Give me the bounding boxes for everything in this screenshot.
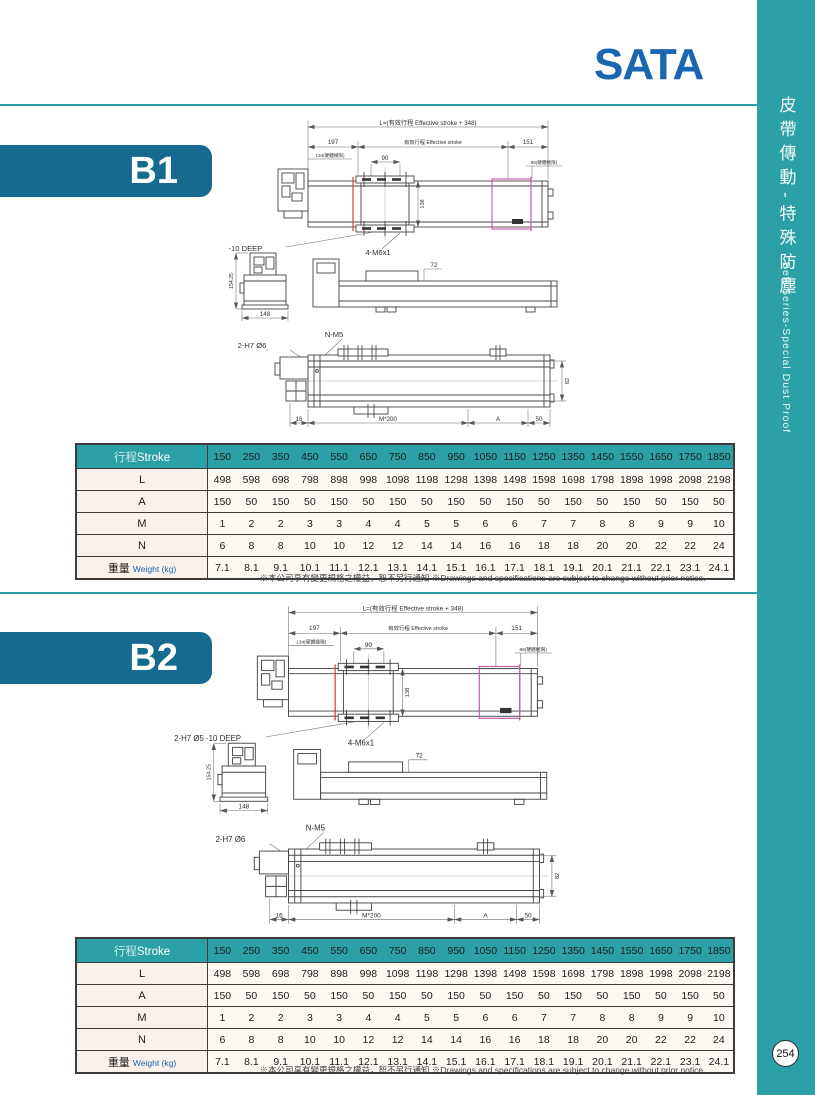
table-cell: 1150 — [500, 938, 529, 963]
table-cell: 1098 — [383, 963, 412, 985]
table-cell: 150 — [559, 985, 588, 1007]
table-cell: 8 — [237, 535, 266, 557]
table-cell: 1898 — [617, 963, 646, 985]
table-cell: 5 — [442, 1007, 471, 1029]
dim-151: 151 — [511, 625, 522, 632]
table-cell: 16 — [471, 1029, 500, 1051]
page-number: 254 — [776, 1048, 794, 1060]
table-cell: 9 — [646, 1007, 675, 1029]
table-cell: 50 — [354, 491, 383, 513]
table-cell: 50 — [295, 985, 324, 1007]
disclaimer-note: ※本公司享有變更規格之權益，恕不另行通知 ※Drawings and speci… — [230, 572, 735, 584]
table-cell: 798 — [295, 469, 324, 491]
table-cell: 1250 — [529, 938, 558, 963]
top-divider — [0, 104, 757, 106]
table-cell: 10 — [705, 1007, 734, 1029]
table-cell: 24 — [705, 1029, 734, 1051]
row-label: N — [76, 535, 208, 557]
table-cell: 2 — [266, 1007, 295, 1029]
table-cell: 898 — [325, 963, 354, 985]
row-label-weight: 重量 Weight (kg) — [76, 557, 208, 580]
table-cell: 4 — [354, 513, 383, 535]
table-cell: 20 — [617, 1029, 646, 1051]
table-cell: 1398 — [471, 469, 500, 491]
label-m6: 4-M6x1 — [348, 738, 374, 747]
table-cell: 1050 — [471, 938, 500, 963]
table-cell: 4 — [383, 1007, 412, 1029]
section-label-b1: B1 — [0, 145, 212, 197]
table-cell: 6 — [500, 1007, 529, 1029]
dim-A: A — [496, 416, 501, 423]
table-cell: 1550 — [617, 444, 646, 469]
table-cell: 598 — [237, 469, 266, 491]
dim-effective-stroke: 有效行程 Effective stroke — [404, 138, 462, 146]
table-cell: 18 — [529, 535, 558, 557]
dim-197: 197 — [328, 139, 339, 146]
table-row: L 49859869879889899810981198129813981498… — [76, 963, 734, 985]
table-cell: 3 — [295, 1007, 324, 1029]
sidebar: 皮帶傳動-特殊防塵 Belt Series-Special Dust Proof… — [757, 0, 815, 1095]
dim-154: 154.25 — [229, 273, 235, 289]
catalog-page: SATA 皮帶傳動-特殊防塵 Belt Series-Special Dust … — [0, 0, 815, 1095]
table-cell: 950 — [442, 938, 471, 963]
label-bottom-holes: 2-H7 Ø6 — [215, 835, 245, 844]
table-row: A 15050150501505015050150501505015050150… — [76, 985, 734, 1007]
table-cell: 22 — [676, 1029, 705, 1051]
table-cell: 22 — [676, 535, 705, 557]
side-view: 72 — [313, 259, 557, 312]
dim-88-limit: 88(硬體極限) — [519, 646, 547, 653]
row-label-weight: 重量 Weight (kg) — [76, 1051, 208, 1074]
table-cell: 150 — [325, 985, 354, 1007]
table-cell: 24 — [705, 535, 734, 557]
dim-effective-stroke: 有效行程 Effective stroke — [388, 624, 448, 632]
table-cell: 10 — [295, 1029, 324, 1051]
table-cell: 150 — [617, 985, 646, 1007]
table-cell: 14 — [442, 535, 471, 557]
dim-50: 50 — [524, 912, 532, 919]
table-cell: 50 — [412, 491, 441, 513]
table-cell: 1998 — [646, 469, 675, 491]
table-cell: 150 — [676, 491, 705, 513]
table-cell: 14 — [412, 1029, 441, 1051]
table-cell: 150 — [500, 491, 529, 513]
dim-82: 82 — [555, 873, 561, 879]
table-cell: 8 — [266, 1029, 295, 1051]
table-cell: 550 — [325, 444, 354, 469]
table-cell: 12 — [354, 1029, 383, 1051]
table-cell: 8 — [588, 1007, 617, 1029]
table-cell: 1198 — [412, 469, 441, 491]
table-cell: 6 — [471, 513, 500, 535]
table-cell: 950 — [442, 444, 471, 469]
table-cell: 1350 — [559, 938, 588, 963]
table-cell: 50 — [529, 985, 558, 1007]
row-label: L — [76, 469, 208, 491]
table-cell: 150 — [442, 491, 471, 513]
disclaimer-en: ※Drawings and specifications are subject… — [432, 573, 706, 583]
table-cell: 1350 — [559, 444, 588, 469]
label-m6: 4-M6x1 — [365, 248, 390, 257]
table-cell: 1498 — [500, 963, 529, 985]
table-cell: 8 — [617, 513, 646, 535]
technical-drawing-b1: L=(有效行程 Effective stroke + 348) 197 有效行程… — [228, 112, 578, 436]
dim-151: 151 — [523, 139, 534, 146]
table-cell: 2 — [237, 513, 266, 535]
sidebar-title-en: Belt Series-Special Dust Proof — [780, 262, 792, 433]
dim-134-limit: 134(硬體極限) — [315, 152, 345, 159]
table-cell: 16 — [471, 535, 500, 557]
table-cell: 50 — [646, 491, 675, 513]
table-header-row: 行程Stroke 1502503504505506507508509501050… — [76, 938, 734, 963]
table-cell: 1650 — [646, 444, 675, 469]
dim-148: 148 — [260, 311, 271, 318]
row-label: M — [76, 513, 208, 535]
dim-138: 138 — [405, 688, 411, 698]
table-cell: 9 — [646, 513, 675, 535]
page-number-badge: 254 — [772, 1040, 799, 1067]
table-cell: 250 — [237, 444, 266, 469]
table-cell: 6 — [208, 1029, 237, 1051]
table-cell: 1498 — [500, 469, 529, 491]
table-cell: 150 — [500, 985, 529, 1007]
table-cell: 4 — [354, 1007, 383, 1029]
table-cell: 50 — [588, 985, 617, 1007]
table-cell: 1750 — [676, 938, 705, 963]
table-cell: 998 — [354, 469, 383, 491]
table-cell: 998 — [354, 963, 383, 985]
table-cell: 498 — [208, 963, 237, 985]
table-row: M 1223344556677889910 — [76, 1007, 734, 1029]
table-header-row: 行程Stroke 1502503504505506507508509501050… — [76, 444, 734, 469]
table-cell: 750 — [383, 444, 412, 469]
dim-82: 82 — [565, 378, 571, 384]
table-cell: 22 — [646, 1029, 675, 1051]
table-cell: 12 — [354, 535, 383, 557]
table-cell: 50 — [237, 491, 266, 513]
top-view: L=(有效行程 Effective stroke + 348) 197 有效行程… — [228, 119, 562, 257]
table-cell: 20 — [588, 1029, 617, 1051]
table-cell: 1198 — [412, 963, 441, 985]
table-cell: 8 — [266, 535, 295, 557]
dim-138: 138 — [420, 199, 426, 208]
table-cell: 10 — [325, 1029, 354, 1051]
table-cell: 1798 — [588, 963, 617, 985]
table-cell: 1398 — [471, 963, 500, 985]
label-top-holes: 2-H7 Ø5 -10 DEEP — [228, 244, 262, 253]
table-cell: 12 — [383, 535, 412, 557]
table-cell: 150 — [208, 491, 237, 513]
dim-148: 148 — [238, 804, 249, 811]
table-cell: 6 — [500, 513, 529, 535]
table-cell: 4 — [383, 513, 412, 535]
table-cell: 7 — [529, 513, 558, 535]
table-cell: 2198 — [705, 963, 734, 985]
table-cell: 50 — [237, 985, 266, 1007]
table-cell: 6 — [208, 535, 237, 557]
disclaimer-en: ※Drawings and specifications are subject… — [432, 1065, 706, 1075]
dim-72: 72 — [431, 262, 438, 269]
table-cell: 16 — [500, 1029, 529, 1051]
table-cell: 10 — [705, 513, 734, 535]
table-cell: 7 — [559, 1007, 588, 1029]
table-cell: 50 — [471, 491, 500, 513]
dim-88-limit: 88(硬體極限) — [531, 159, 558, 166]
disclaimer-zh: ※本公司享有變更規格之權益，恕不另行通知 — [260, 1065, 430, 1075]
table-cell: 1998 — [646, 963, 675, 985]
table-cell: 150 — [559, 491, 588, 513]
table-cell: 9 — [676, 1007, 705, 1029]
table-cell: 7 — [529, 1007, 558, 1029]
table-cell: 16 — [500, 535, 529, 557]
table-cell: 5 — [412, 1007, 441, 1029]
dim-A: A — [483, 912, 488, 919]
stroke-table-b2: 行程Stroke 1502503504505506507508509501050… — [75, 937, 735, 1074]
end-view: 154.25 148 — [229, 253, 288, 321]
section-divider — [0, 592, 757, 594]
table-cell: 1298 — [442, 963, 471, 985]
dim-90: 90 — [382, 155, 389, 162]
top-view: L=(有效行程 Effective stroke + 348) 197 有效行程… — [174, 603, 552, 747]
dim-154: 154.25 — [207, 764, 213, 780]
table-cell: 1898 — [617, 469, 646, 491]
table-cell: 1150 — [500, 444, 529, 469]
table-cell: 150 — [208, 444, 237, 469]
table-cell: 5 — [442, 513, 471, 535]
table-cell: 50 — [295, 491, 324, 513]
table-cell: 1250 — [529, 444, 558, 469]
table-cell: 150 — [208, 985, 237, 1007]
stroke-header-cell: 行程Stroke — [76, 444, 208, 469]
table-cell: 798 — [295, 963, 324, 985]
table-cell: 150 — [617, 491, 646, 513]
table-cell: 1598 — [529, 963, 558, 985]
table-cell: 1450 — [588, 444, 617, 469]
table-cell: 498 — [208, 469, 237, 491]
table-cell: 50 — [588, 491, 617, 513]
end-view: 154.25 148 — [207, 743, 268, 814]
dim-197: 197 — [309, 625, 320, 632]
table-cell: 7 — [559, 513, 588, 535]
table-cell: 20 — [588, 535, 617, 557]
table-cell: 3 — [295, 513, 324, 535]
dim-72: 72 — [416, 753, 424, 760]
table-cell: 2098 — [676, 469, 705, 491]
sata-logo: SATA — [594, 40, 703, 90]
table-cell: 9 — [676, 513, 705, 535]
table-cell: 18 — [559, 535, 588, 557]
table-cell: 650 — [354, 938, 383, 963]
table-cell: 50 — [529, 491, 558, 513]
table-cell: 50 — [646, 985, 675, 1007]
table-cell: 8 — [588, 513, 617, 535]
table-cell: 150 — [266, 985, 295, 1007]
table-cell: 50 — [412, 985, 441, 1007]
table-cell: 150 — [266, 491, 295, 513]
dim-m200: M*200 — [362, 912, 381, 919]
table-cell: 1750 — [676, 444, 705, 469]
row-label: A — [76, 491, 208, 513]
label-top-holes: 2-H7 Ø5 -10 DEEP — [174, 734, 241, 743]
table-cell: 10 — [325, 535, 354, 557]
table-cell: 698 — [266, 469, 295, 491]
table-cell: 18 — [559, 1029, 588, 1051]
stroke-table-b1: 行程Stroke 1502503504505506507508509501050… — [75, 443, 735, 580]
dim-134-limit: 134(硬體極限) — [296, 639, 327, 646]
table-cell: 2 — [266, 513, 295, 535]
table-cell: 450 — [295, 938, 324, 963]
table-cell: 250 — [237, 938, 266, 963]
dim-50: 50 — [536, 416, 543, 423]
table-cell: 150 — [325, 491, 354, 513]
table-cell: 12 — [383, 1029, 412, 1051]
table-cell: 50 — [471, 985, 500, 1007]
dim-m200: M*200 — [379, 416, 397, 423]
table-cell: 1550 — [617, 938, 646, 963]
table-cell: 650 — [354, 444, 383, 469]
row-label: A — [76, 985, 208, 1007]
table-cell: 150 — [208, 938, 237, 963]
table-cell: 1850 — [705, 938, 734, 963]
table-cell: 8 — [617, 1007, 646, 1029]
table-cell: 450 — [295, 444, 324, 469]
table-cell: 20 — [617, 535, 646, 557]
table-cell: 14 — [412, 535, 441, 557]
table-cell: 1650 — [646, 938, 675, 963]
table-cell: 22 — [646, 535, 675, 557]
table-cell: 698 — [266, 963, 295, 985]
table-cell: 1098 — [383, 469, 412, 491]
stroke-header-cell: 行程Stroke — [76, 938, 208, 963]
dim-16: 16 — [276, 912, 284, 919]
table-cell: 18 — [529, 1029, 558, 1051]
table-cell: 898 — [325, 469, 354, 491]
dim-90: 90 — [365, 642, 373, 649]
table-cell: 50 — [354, 985, 383, 1007]
table-cell: 14 — [442, 1029, 471, 1051]
side-view: 72 — [294, 749, 547, 804]
bottom-view: N-M5 2-H7 Ø6 82 16 M*200 A 50 — [215, 823, 561, 923]
table-row: N 688101012121414161618182020222224 — [76, 1029, 734, 1051]
table-cell: 50 — [705, 491, 734, 513]
table-cell: 150 — [383, 491, 412, 513]
table-cell: 5 — [412, 513, 441, 535]
bottom-view: N-M5 2-H7 Ø6 82 16 M*200 A 50 — [238, 330, 571, 427]
table-cell: 50 — [705, 985, 734, 1007]
table-cell: 1 — [208, 513, 237, 535]
row-label: N — [76, 1029, 208, 1051]
table-cell: 850 — [412, 444, 441, 469]
table-cell: 598 — [237, 963, 266, 985]
table-cell: 550 — [325, 938, 354, 963]
table-cell: 1598 — [529, 469, 558, 491]
table-cell: 1850 — [705, 444, 734, 469]
dim-overall-length: L=(有效行程 Effective stroke + 348) — [362, 603, 463, 612]
table-cell: 150 — [676, 985, 705, 1007]
label-bottom-holes: 2-H7 Ø6 — [238, 341, 267, 350]
table-cell: 150 — [383, 985, 412, 1007]
table-cell: 1050 — [471, 444, 500, 469]
table-row: N 688101012121414161618182020222224 — [76, 535, 734, 557]
table-row: A 15050150501505015050150501505015050150… — [76, 491, 734, 513]
disclaimer-zh: ※本公司享有變更規格之權益，恕不另行通知 — [260, 573, 430, 583]
label-nm5: N-M5 — [325, 330, 344, 339]
table-cell: 8 — [237, 1029, 266, 1051]
table-cell: 1698 — [559, 469, 588, 491]
table-cell: 3 — [325, 1007, 354, 1029]
table-cell: 3 — [325, 513, 354, 535]
disclaimer-note: ※本公司享有變更規格之權益，恕不另行通知 ※Drawings and speci… — [230, 1064, 735, 1076]
table-cell: 750 — [383, 938, 412, 963]
table-cell: 1450 — [588, 938, 617, 963]
dim-16: 16 — [296, 416, 303, 423]
table-cell: 2198 — [705, 469, 734, 491]
label-nm5: N-M5 — [306, 823, 326, 832]
row-label: M — [76, 1007, 208, 1029]
table-cell: 350 — [266, 938, 295, 963]
table-row: M 1223344556677889910 — [76, 513, 734, 535]
table-cell: 2 — [237, 1007, 266, 1029]
table-cell: 150 — [442, 985, 471, 1007]
table-cell: 10 — [295, 535, 324, 557]
table-cell: 6 — [471, 1007, 500, 1029]
table-cell: 1698 — [559, 963, 588, 985]
table-cell: 350 — [266, 444, 295, 469]
table-cell: 1298 — [442, 469, 471, 491]
technical-drawing-b2: L=(有效行程 Effective stroke + 348) 197 有效行程… — [172, 598, 602, 932]
table-cell: 2098 — [676, 963, 705, 985]
row-label: L — [76, 963, 208, 985]
table-cell: 1 — [208, 1007, 237, 1029]
dim-overall-length: L=(有效行程 Effective stroke + 348) — [379, 119, 476, 127]
table-cell: 850 — [412, 938, 441, 963]
table-row: L 49859869879889899810981198129813981498… — [76, 469, 734, 491]
table-cell: 1798 — [588, 469, 617, 491]
